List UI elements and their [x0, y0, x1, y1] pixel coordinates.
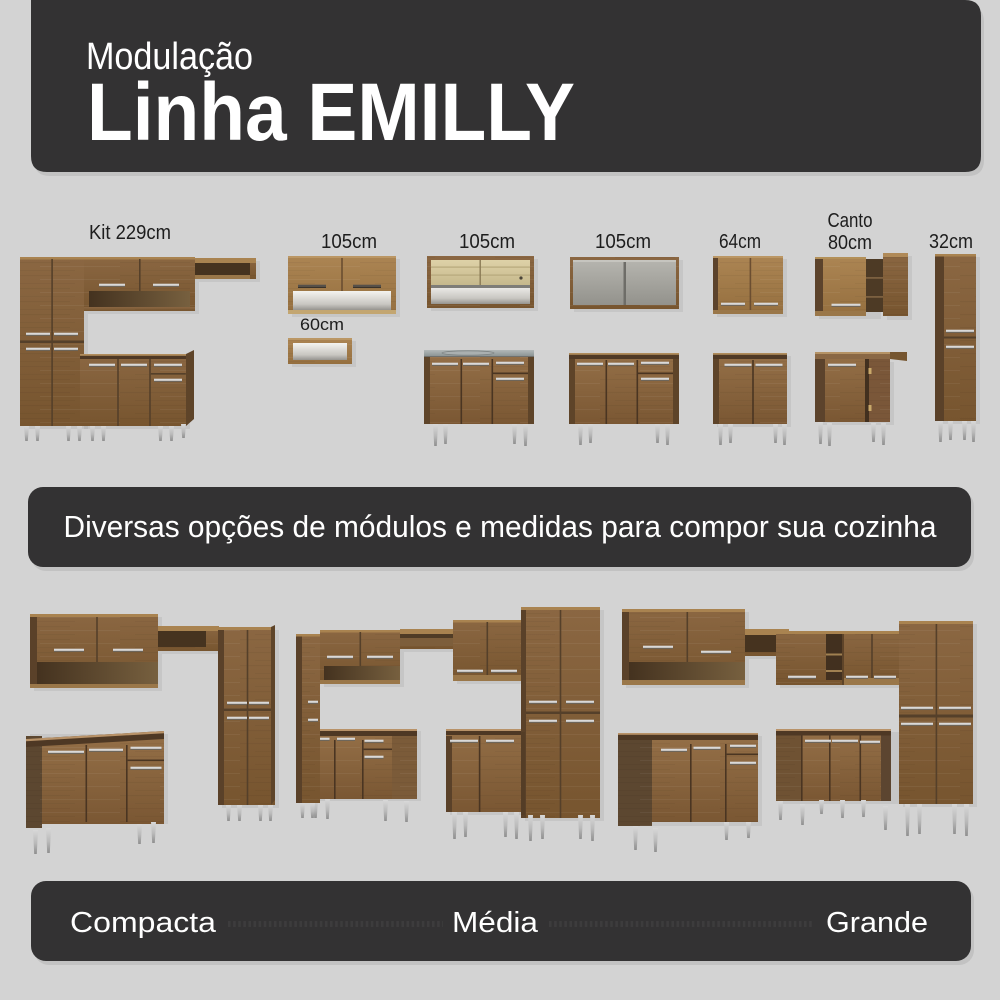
svg-text:Canto: Canto	[828, 210, 873, 232]
svg-text:105cm: 105cm	[595, 231, 651, 253]
svg-text:Média: Média	[452, 907, 539, 939]
svg-text:60cm: 60cm	[300, 315, 344, 334]
svg-text:32cm: 32cm	[929, 231, 973, 253]
svg-text:80cm: 80cm	[828, 232, 872, 254]
svg-text:Linha EMILLY: Linha EMILLY	[87, 67, 575, 158]
svg-text:64cm: 64cm	[719, 231, 761, 253]
svg-text:Grande: Grande	[826, 907, 928, 939]
svg-text:Kit 229cm: Kit 229cm	[89, 222, 171, 244]
svg-text:Diversas opções de módulos e m: Diversas opções de módulos e medidas par…	[64, 509, 938, 544]
svg-text:Compacta: Compacta	[70, 907, 217, 939]
svg-text:105cm: 105cm	[321, 231, 377, 253]
svg-text:105cm: 105cm	[459, 231, 515, 253]
